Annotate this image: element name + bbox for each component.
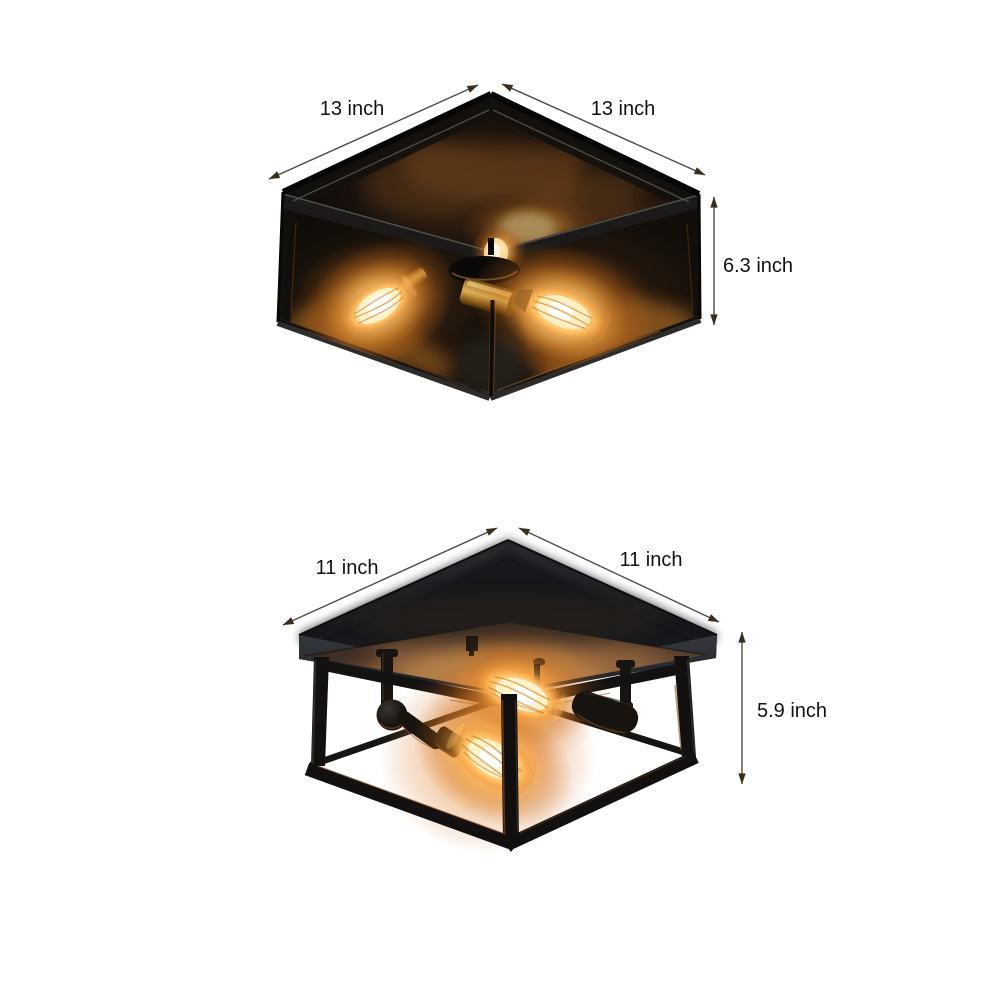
svg-text:11 inch: 11 inch (619, 549, 682, 571)
svg-text:6.3 inch: 6.3 inch (723, 255, 793, 277)
svg-text:13 inch: 13 inch (591, 98, 656, 120)
svg-text:11 inch: 11 inch (315, 557, 378, 579)
svg-text:5.9 inch: 5.9 inch (757, 700, 827, 722)
svg-text:13 inch: 13 inch (320, 98, 385, 120)
